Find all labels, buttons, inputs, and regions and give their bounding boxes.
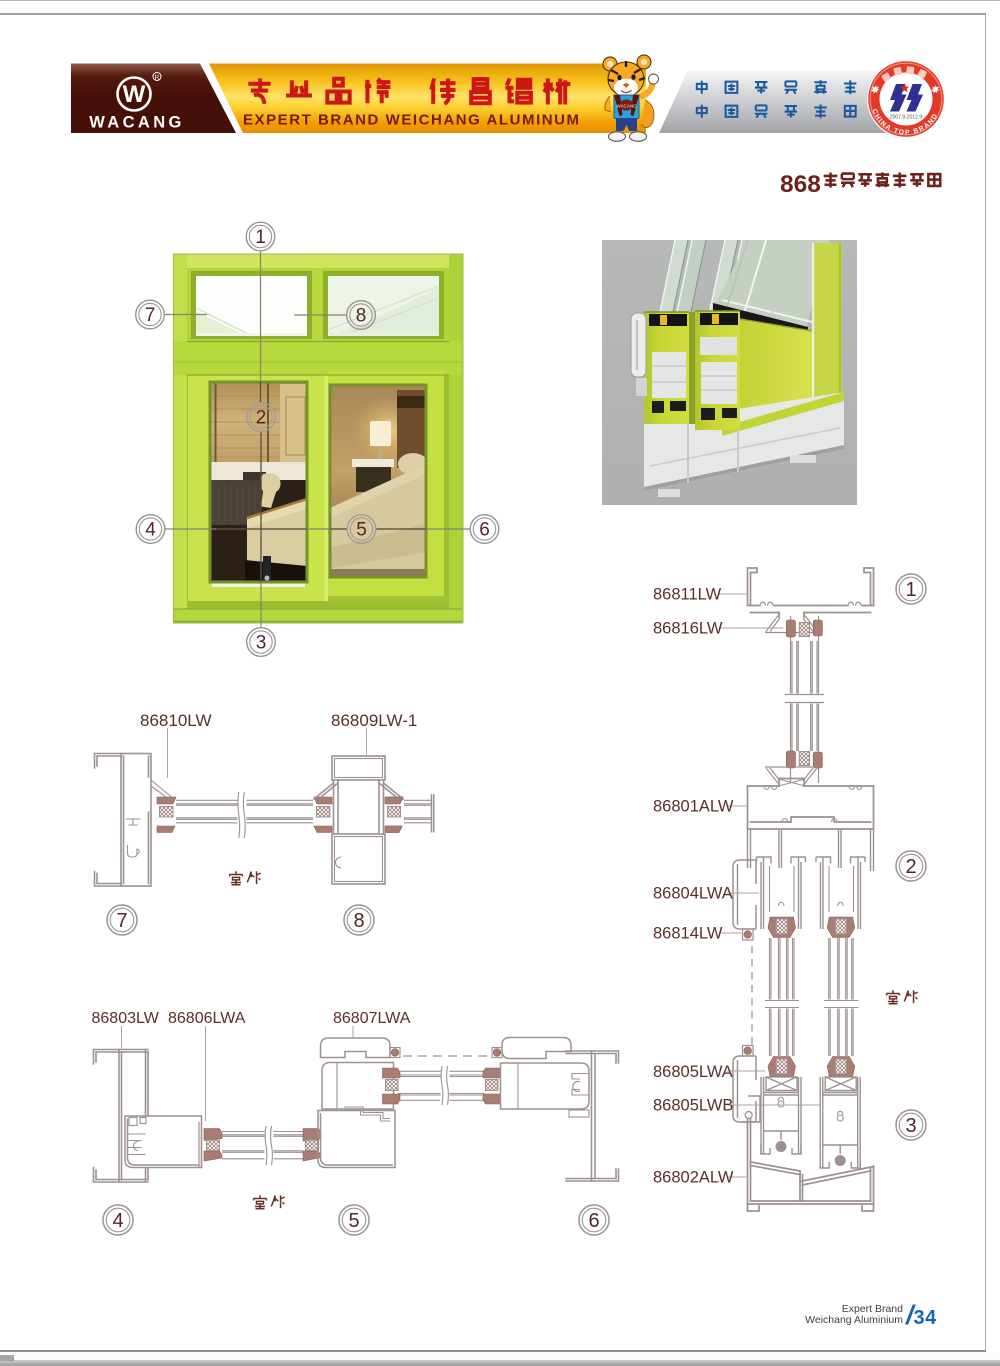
svg-text:86810LW: 86810LW bbox=[140, 711, 212, 730]
svg-text:5: 5 bbox=[356, 520, 367, 541]
svg-text:86814LW: 86814LW bbox=[653, 925, 723, 943]
svg-text:86804LWA: 86804LWA bbox=[653, 885, 733, 903]
svg-text:86809LW-1: 86809LW-1 bbox=[331, 711, 417, 730]
svg-text:7: 7 bbox=[145, 305, 156, 326]
svg-text:868: 868 bbox=[780, 171, 821, 198]
svg-text:4: 4 bbox=[112, 1210, 123, 1232]
svg-text:WACANG: WACANG bbox=[616, 104, 637, 109]
svg-text:86801ALW: 86801ALW bbox=[653, 798, 734, 816]
svg-text:2: 2 bbox=[256, 408, 267, 429]
svg-text:8: 8 bbox=[356, 306, 367, 327]
svg-text:86816LW: 86816LW bbox=[653, 620, 723, 638]
svg-text:R: R bbox=[155, 74, 160, 81]
svg-text:86811LW: 86811LW bbox=[653, 586, 722, 604]
svg-text:1: 1 bbox=[905, 579, 916, 601]
svg-text:6: 6 bbox=[588, 1210, 599, 1232]
svg-text:86805LWB: 86805LWB bbox=[653, 1097, 733, 1115]
svg-text:7: 7 bbox=[116, 910, 127, 932]
svg-text:8: 8 bbox=[353, 910, 364, 932]
svg-text:WACANG: WACANG bbox=[89, 114, 185, 132]
svg-text:3: 3 bbox=[905, 1115, 916, 1137]
svg-text:1: 1 bbox=[255, 227, 266, 248]
svg-text:86802ALW: 86802ALW bbox=[653, 1169, 734, 1187]
svg-text:W: W bbox=[123, 81, 146, 108]
svg-text:86803LW: 86803LW bbox=[92, 1010, 160, 1027]
svg-text:2: 2 bbox=[905, 856, 916, 878]
svg-text:86805LWA: 86805LWA bbox=[653, 1063, 733, 1081]
svg-text:EXPERT BRAND WEICHANG ALUMINUM: EXPERT BRAND WEICHANG ALUMINUM bbox=[243, 112, 581, 129]
svg-text:86807LWA: 86807LWA bbox=[333, 1010, 411, 1027]
svg-text:86806LWA: 86806LWA bbox=[168, 1010, 246, 1027]
svg-text:6: 6 bbox=[479, 520, 490, 541]
svg-text:4: 4 bbox=[145, 520, 156, 541]
svg-text:2007.9-2012.9: 2007.9-2012.9 bbox=[890, 115, 922, 121]
svg-text:5: 5 bbox=[348, 1210, 359, 1232]
